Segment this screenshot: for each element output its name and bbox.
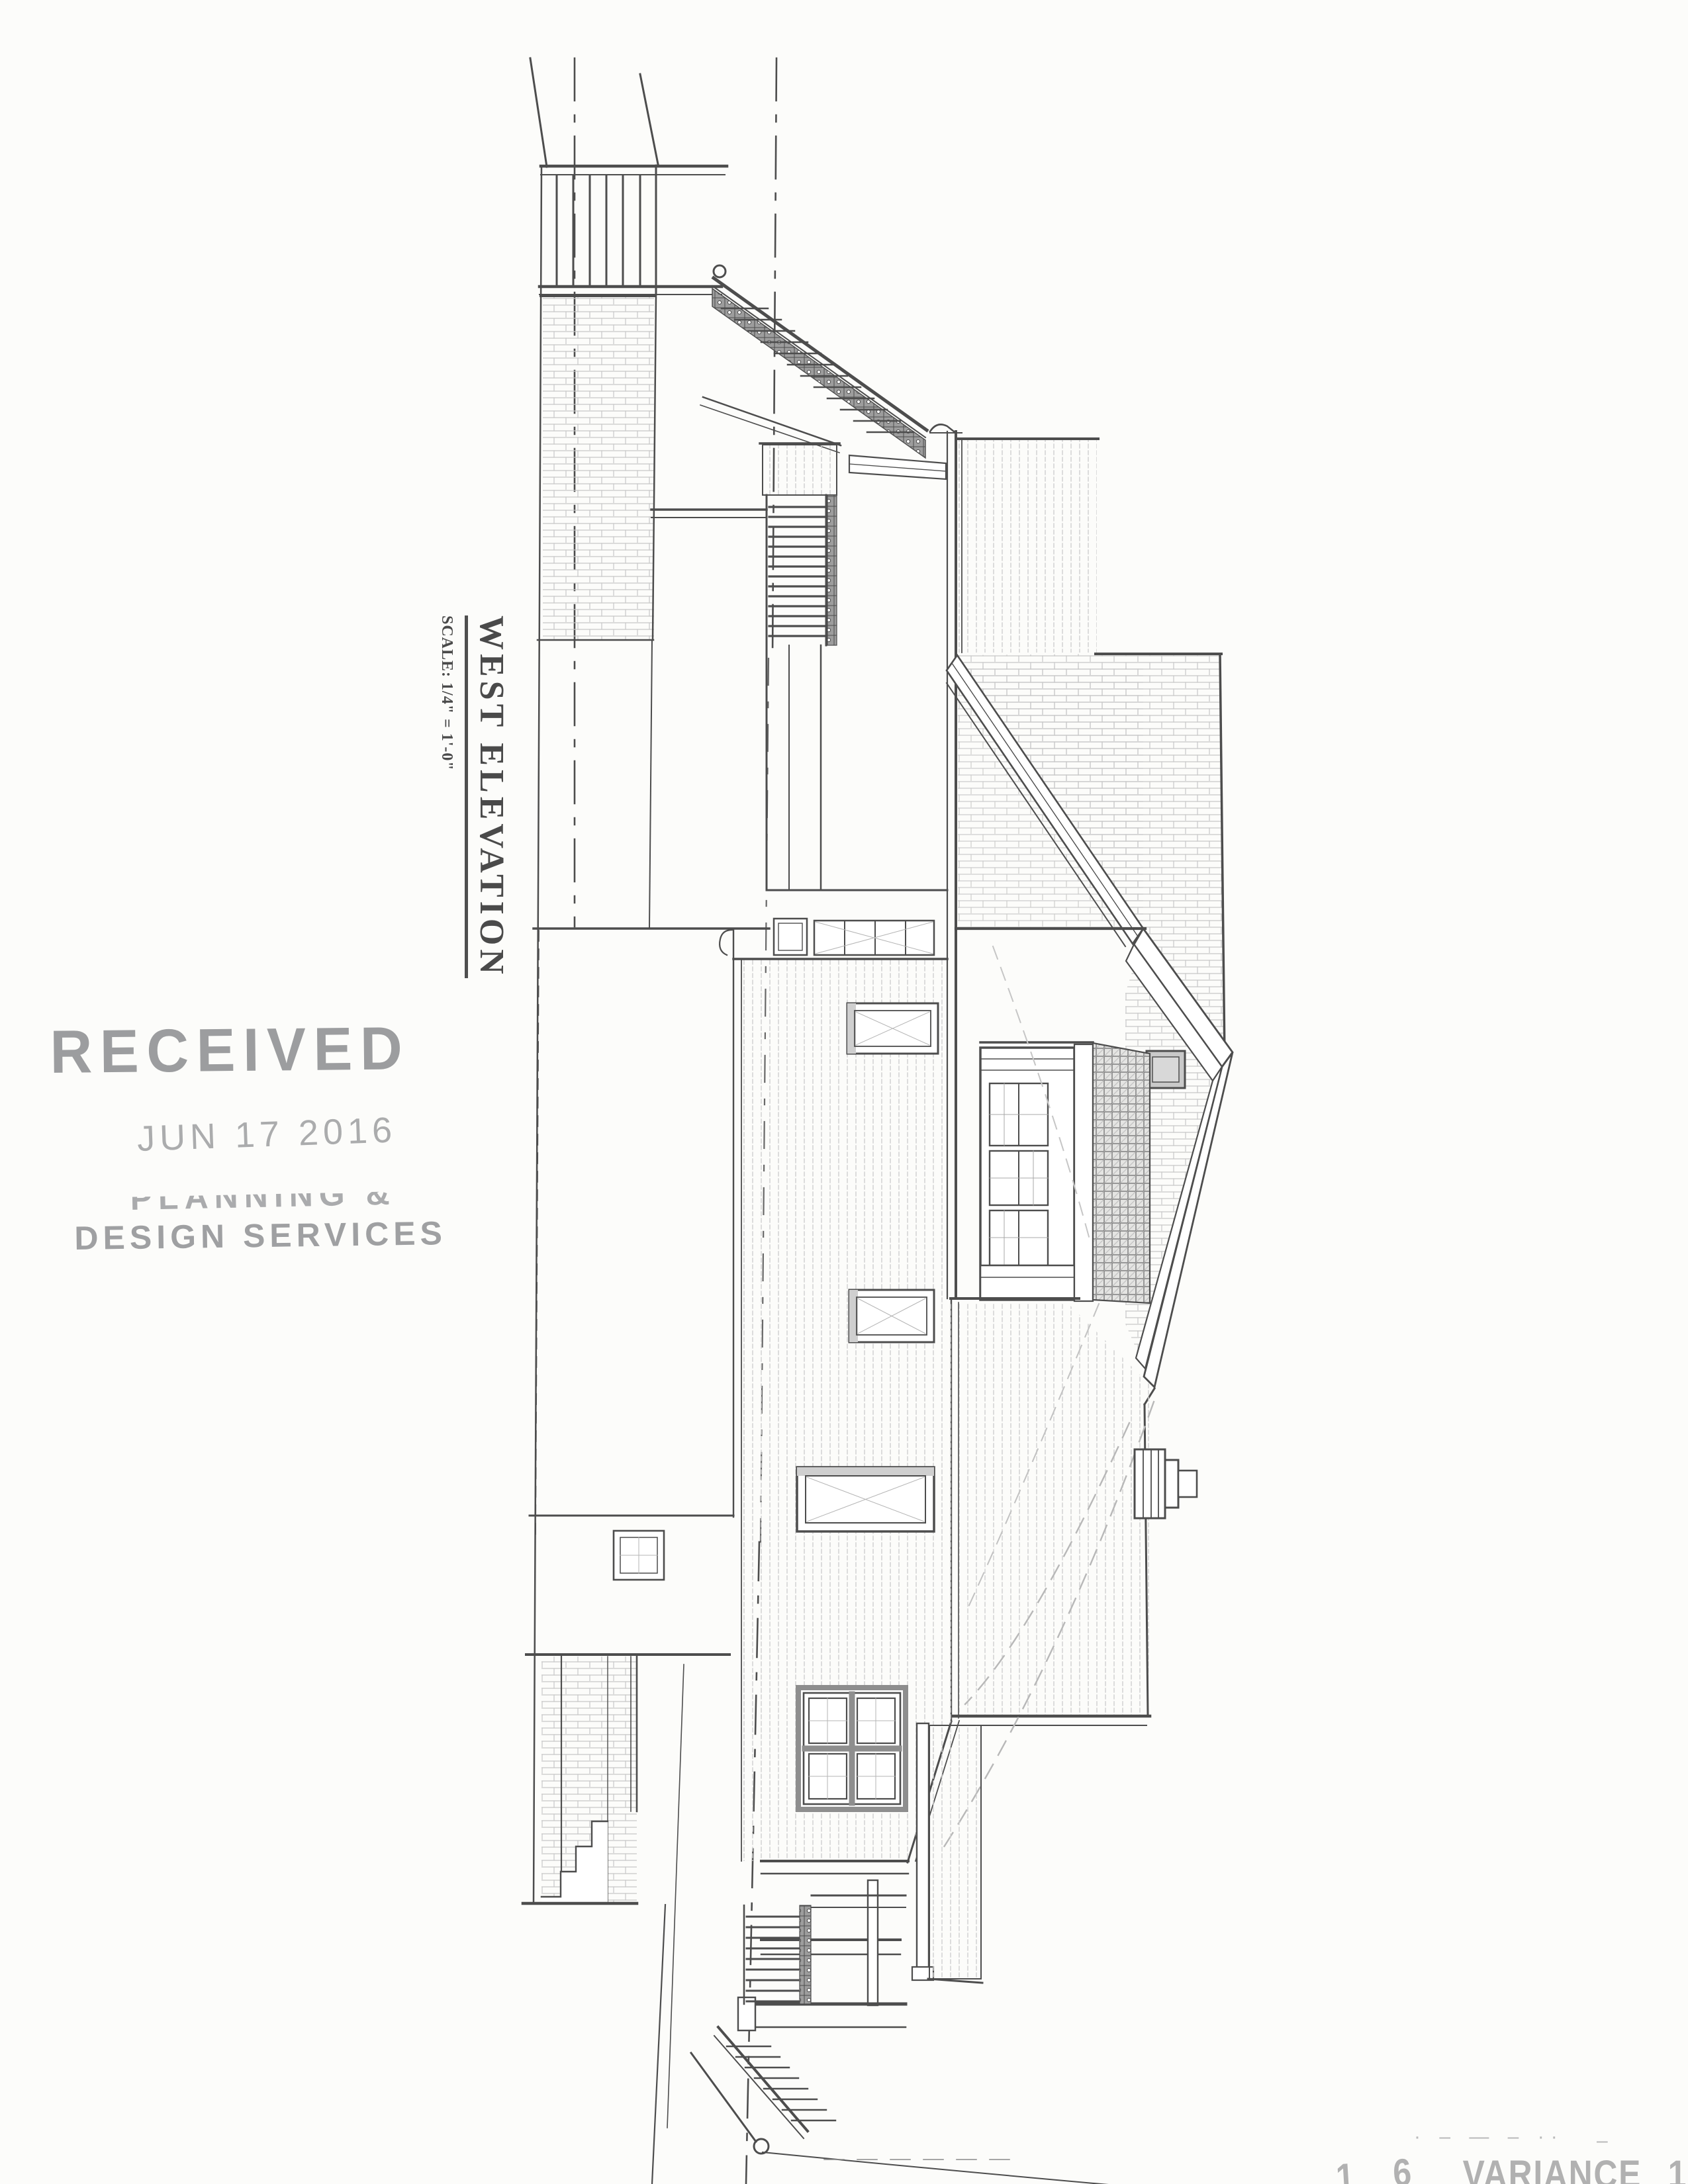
received-stamp-title: RECEIVED — [50, 1014, 410, 1087]
variance-stamp: 1 6 VARIANCE 1 0 4 4 — [1336, 2152, 1688, 2184]
scanned-sheet: WEST ELEVATION SCALE: 1/4" = 1'-0" RECEI… — [0, 0, 1688, 2184]
retaining-wall-and-guard-railing — [534, 165, 769, 929]
chimney — [1135, 1449, 1197, 1518]
variance-stamp-case-number: 1 0 4 4 — [1668, 2152, 1688, 2184]
middle-wall — [720, 890, 951, 1861]
title-block: WEST ELEVATION SCALE: 1/4" = 1'-0" — [438, 615, 511, 978]
variance-stamp-partial-marks: · – — – ·· — [1414, 2126, 1564, 2148]
variance-stamp-label: VARIANCE — [1463, 2152, 1642, 2184]
received-stamp-department-line2: DESIGN SERVICES — [74, 1214, 447, 1257]
variance-stamp-prefix-digits: 1 6 — [1335, 2149, 1427, 2184]
stair-tower — [651, 443, 946, 890]
upper-exterior-stair — [700, 265, 927, 458]
lower-left-wall — [523, 1516, 733, 1903]
drawing-title: WEST ELEVATION — [465, 615, 511, 978]
variance-stamp-stray-mark: – — [1597, 2130, 1608, 2152]
elevation-drawing — [0, 0, 1688, 2184]
bay-window — [980, 1042, 1150, 1303]
drawing-scale-note: SCALE: 1/4" = 1'-0" — [438, 615, 455, 978]
